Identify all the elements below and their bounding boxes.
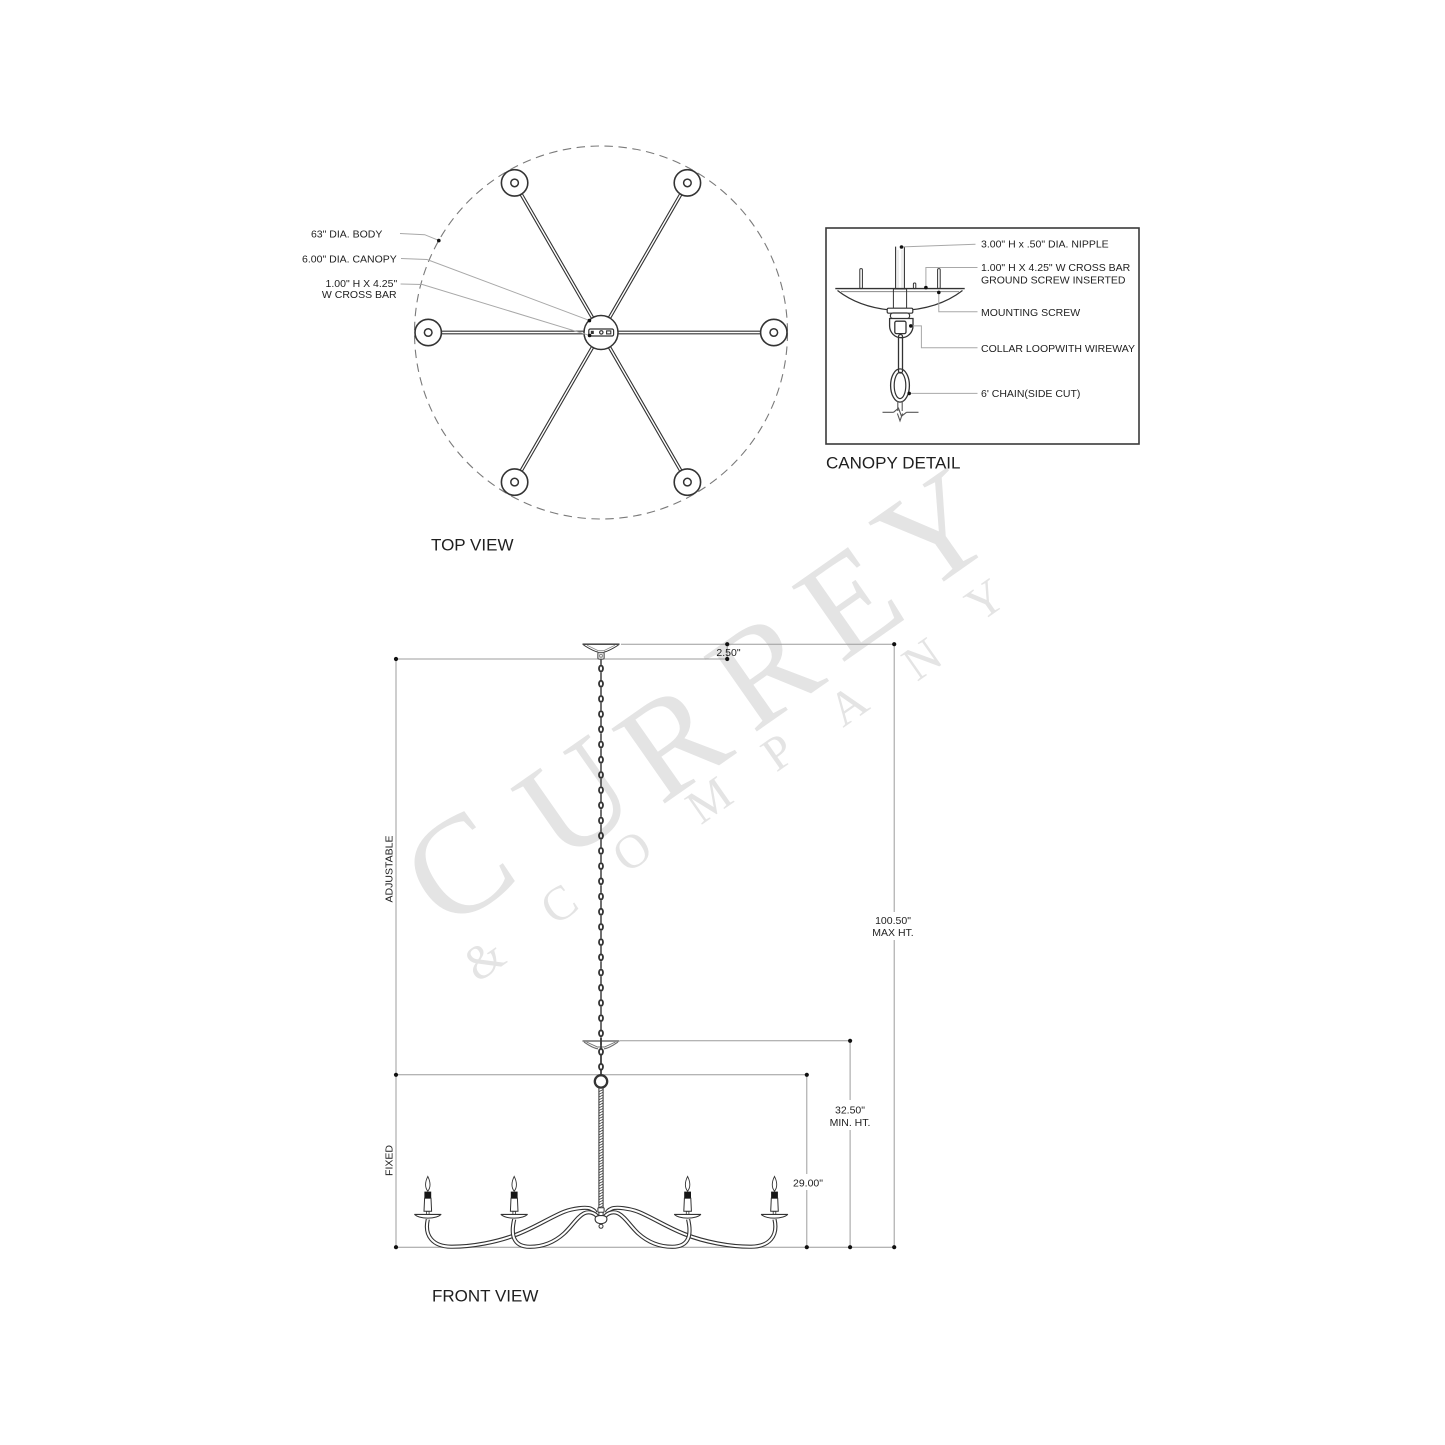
svg-text:100.50": 100.50" bbox=[875, 915, 911, 927]
svg-text:GROUND SCREW INSERTED: GROUND SCREW INSERTED bbox=[981, 275, 1126, 287]
svg-text:ADJUSTABLE: ADJUSTABLE bbox=[383, 836, 395, 903]
svg-text:W CROSS BAR: W CROSS BAR bbox=[322, 289, 397, 301]
svg-text:3.00" H x .50" DIA. NIPPLE: 3.00" H x .50" DIA. NIPPLE bbox=[981, 239, 1109, 251]
svg-text:2.50": 2.50" bbox=[716, 647, 740, 659]
svg-text:63" DIA. BODY: 63" DIA. BODY bbox=[311, 229, 382, 241]
svg-text:MIN. HT.: MIN. HT. bbox=[830, 1117, 871, 1129]
svg-text:6.00" DIA. CANOPY: 6.00" DIA. CANOPY bbox=[302, 254, 397, 266]
svg-text:TOP VIEW: TOP VIEW bbox=[431, 536, 514, 555]
svg-text:MAX HT.: MAX HT. bbox=[872, 927, 913, 939]
svg-text:FRONT VIEW: FRONT VIEW bbox=[432, 1287, 538, 1306]
svg-text:32.50": 32.50" bbox=[835, 1105, 865, 1117]
svg-text:CANOPY DETAIL: CANOPY DETAIL bbox=[826, 454, 960, 473]
svg-text:1.00" H X 4.25" W CROSS BAR: 1.00" H X 4.25" W CROSS BAR bbox=[981, 262, 1131, 274]
svg-text:29.00": 29.00" bbox=[793, 1177, 823, 1189]
svg-text:6' CHAIN(SIDE CUT): 6' CHAIN(SIDE CUT) bbox=[981, 388, 1080, 400]
svg-text:MOUNTING SCREW: MOUNTING SCREW bbox=[981, 307, 1080, 319]
svg-text:1.00" H X 4.25": 1.00" H X 4.25" bbox=[326, 278, 398, 290]
svg-text:COLLAR LOOPWITH WIREWAY: COLLAR LOOPWITH WIREWAY bbox=[981, 343, 1135, 355]
svg-text:FIXED: FIXED bbox=[383, 1145, 395, 1176]
